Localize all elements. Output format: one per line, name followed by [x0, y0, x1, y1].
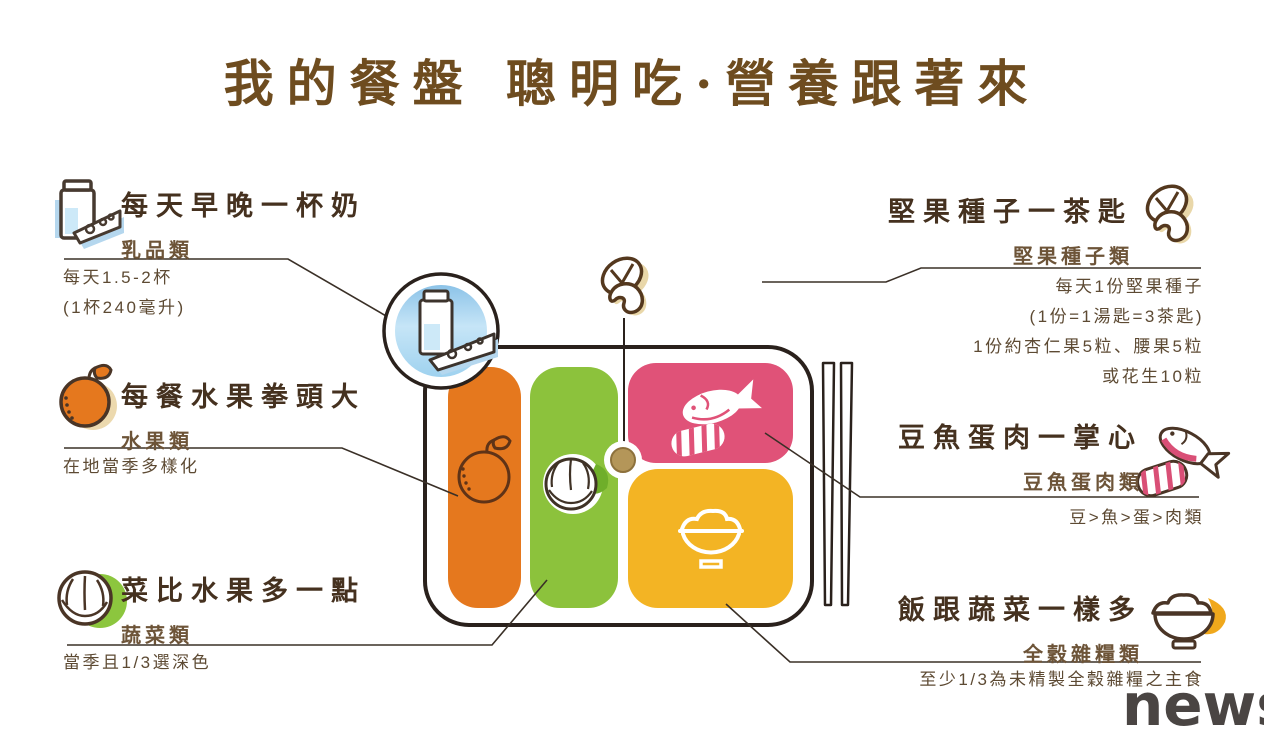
- section-grains: 飯跟蔬菜一樣多 全穀雜糧類: [898, 588, 1143, 667]
- grains-heading: 飯跟蔬菜一樣多: [898, 588, 1143, 627]
- section-protein: 豆魚蛋肉一掌心 豆魚蛋肉類: [898, 416, 1143, 495]
- page-title: 我的餐盤 聰明吃·營養跟著來: [0, 44, 1264, 116]
- vegetable-category: 蔬菜類: [121, 619, 366, 648]
- milk-circle-callout: [384, 274, 498, 388]
- orange-fruit-icon: [61, 365, 117, 430]
- protein-heading: 豆魚蛋肉一掌心: [898, 416, 1143, 455]
- plate: [425, 347, 812, 625]
- fruit-section: [448, 367, 521, 608]
- dairy-details: 每天1.5-2杯 (1杯240毫升): [63, 263, 186, 323]
- fish-and-meat-icon: [1133, 421, 1230, 503]
- fruit-details: 在地當季多樣化: [63, 452, 200, 482]
- vegetable-details: 當季且1/3選深色: [63, 648, 211, 678]
- nuts-heading: 堅果種子一茶匙: [888, 190, 1133, 229]
- nuts-detail-line: 或花生10粒: [973, 362, 1204, 392]
- fruit-detail-line: 在地當季多樣化: [63, 452, 200, 482]
- milk-and-cheese-icon: [55, 181, 124, 249]
- nuts-icon: [1141, 179, 1201, 244]
- dairy-heading: 每天早晚一杯奶: [121, 184, 366, 223]
- nuts-detail-line: (1份=1湯匙=3茶匙): [973, 302, 1204, 332]
- protein-detail-line: 豆>魚>蛋>肉類: [1069, 503, 1204, 533]
- nuts-category: 堅果種子類: [888, 240, 1133, 269]
- nuts-detail-line: 1份約杏仁果5粒、腰果5粒: [973, 332, 1204, 362]
- protein-category: 豆魚蛋肉類: [898, 466, 1143, 495]
- chopsticks: [823, 363, 852, 605]
- news-watermark: news: [1122, 676, 1264, 734]
- section-dairy: 每天早晚一杯奶 乳品類: [121, 184, 366, 263]
- nuts-details: 每天1份堅果種子 (1份=1湯匙=3茶匙) 1份約杏仁果5粒、腰果5粒 或花生1…: [973, 272, 1204, 392]
- seed-marker: [604, 441, 642, 479]
- vegetable-heading: 菜比水果多一點: [121, 569, 366, 608]
- fruit-heading: 每餐水果拳頭大: [121, 375, 366, 414]
- dairy-detail-line: (1杯240毫升): [63, 293, 186, 323]
- rice-bowl-icon: [1153, 595, 1226, 648]
- nuts-detail-line: 每天1份堅果種子: [973, 272, 1204, 302]
- grains-section: [628, 469, 793, 608]
- dairy-category: 乳品類: [121, 234, 366, 263]
- section-nuts: 堅果種子一茶匙 堅果種子類: [888, 190, 1133, 269]
- section-fruit: 每餐水果拳頭大 水果類: [121, 375, 366, 454]
- grains-category: 全穀雜糧類: [898, 638, 1143, 667]
- cabbage-icon: [59, 572, 127, 628]
- dairy-detail-line: 每天1.5-2杯: [63, 263, 186, 293]
- section-vegetable: 菜比水果多一點 蔬菜類: [121, 569, 366, 648]
- nuts-icon-above-plate: [596, 251, 656, 316]
- vegetable-detail-line: 當季且1/3選深色: [63, 648, 211, 678]
- fruit-category: 水果類: [121, 425, 366, 454]
- protein-details: 豆>魚>蛋>肉類: [1069, 503, 1204, 533]
